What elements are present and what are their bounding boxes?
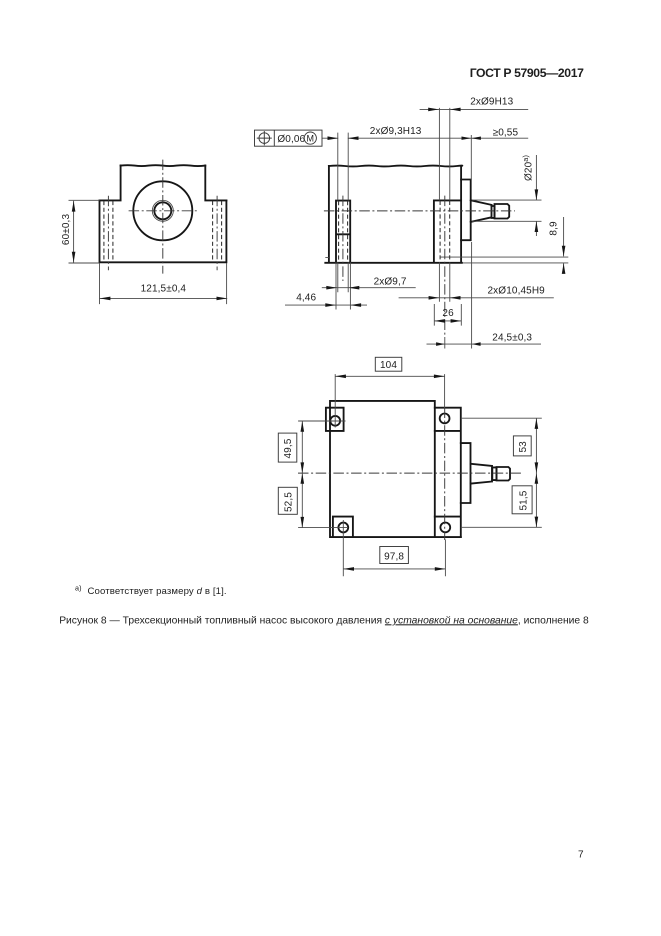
svg-text:53: 53 xyxy=(518,441,529,453)
svg-text:26: 26 xyxy=(442,308,454,319)
svg-text:104: 104 xyxy=(380,360,397,371)
svg-text:Ø20а): Ø20а) xyxy=(521,155,534,181)
svg-text:М: М xyxy=(306,134,314,144)
svg-text:2хØ10,45Н9: 2хØ10,45Н9 xyxy=(488,285,546,296)
svg-text:52,5: 52,5 xyxy=(283,492,294,512)
svg-text:8,9: 8,9 xyxy=(549,221,560,236)
svg-text:2хØ9Н13: 2хØ9Н13 xyxy=(470,97,513,108)
svg-text:97,8: 97,8 xyxy=(384,552,404,563)
svg-text:Рисунок 8 — Трехсекционный топ: Рисунок 8 — Трехсекционный топливный нас… xyxy=(59,615,589,626)
svg-text:Ø0,06: Ø0,06 xyxy=(277,134,305,145)
svg-text:≥0,55: ≥0,55 xyxy=(493,127,519,138)
svg-text:ГОСТ Р 57905—2017: ГОСТ Р 57905—2017 xyxy=(470,66,584,80)
svg-text:7: 7 xyxy=(578,850,584,861)
svg-text:121,5±0,4: 121,5±0,4 xyxy=(141,284,187,295)
svg-text:49,5: 49,5 xyxy=(283,438,294,458)
svg-text:4,46: 4,46 xyxy=(296,293,316,304)
svg-text:24,5±0,3: 24,5±0,3 xyxy=(492,332,532,343)
svg-text:2хØ9,7: 2хØ9,7 xyxy=(374,276,407,287)
svg-text:а): а) xyxy=(75,584,82,593)
svg-text:2хØ9,3Н13: 2хØ9,3Н13 xyxy=(370,126,422,137)
svg-text:60±0,3: 60±0,3 xyxy=(61,214,72,246)
svg-text:51,5: 51,5 xyxy=(518,490,529,510)
svg-text:Соответствует размеру d в [1].: Соответствует размеру d в [1]. xyxy=(88,586,227,597)
